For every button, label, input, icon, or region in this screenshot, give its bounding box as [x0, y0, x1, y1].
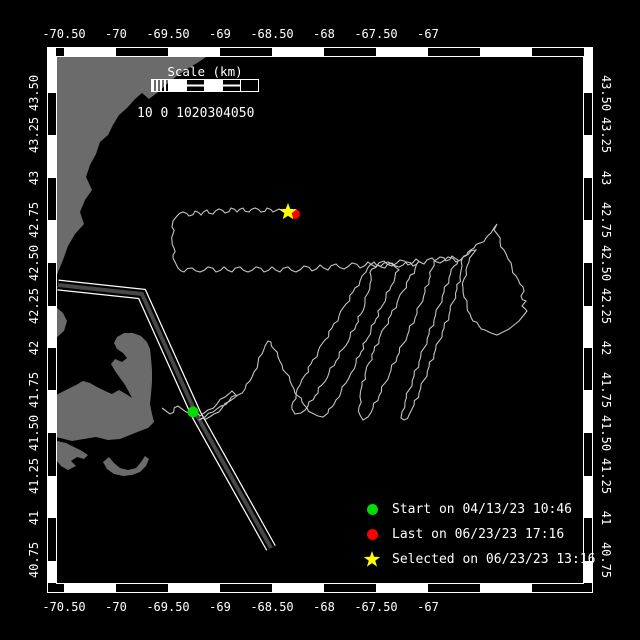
axis-label-right-4: 42.50 [599, 245, 613, 281]
axis-label-top-3: -69 [209, 27, 231, 41]
start-marker-icon [367, 504, 378, 515]
border-band-left [48, 135, 56, 178]
axis-label-left-9: 41.25 [27, 458, 41, 494]
map-geography [48, 57, 527, 548]
axis-label-left-1: 43.25 [27, 117, 41, 153]
land-north-shore-coast [48, 57, 206, 300]
border-band-left [48, 48, 56, 93]
axis-label-top-4: -68.50 [250, 27, 293, 41]
border-band-right [584, 135, 592, 178]
axis-label-bottom-6: -67.50 [354, 600, 397, 614]
border-band-left [48, 561, 56, 583]
axis-label-right-2: 43 [599, 171, 613, 185]
land-marthas-vineyard [57, 441, 88, 470]
axis-label-top-1: -70 [105, 27, 127, 41]
axis-label-bottom-2: -69.50 [146, 600, 189, 614]
selected-marker-icon [364, 551, 381, 568]
border-band-left [48, 220, 56, 263]
border-band-bottom [272, 584, 324, 592]
axis-label-top-7: -67 [417, 27, 439, 41]
border-band-top [168, 48, 220, 56]
border-band-top [64, 48, 116, 56]
last-marker-icon [367, 529, 378, 540]
axis-label-bottom-7: -67 [417, 600, 439, 614]
track-legend: Start on 04/13/23 10:46 Last on 06/23/23… [360, 497, 596, 572]
legend-item-start: Start on 04/13/23 10:46 [360, 497, 596, 522]
border-band-right [584, 306, 592, 348]
axis-label-left-7: 41.75 [27, 372, 41, 408]
axis-label-right-7: 41.75 [599, 372, 613, 408]
axis-label-bottom-1: -70 [105, 600, 127, 614]
axis-label-right-6: 42 [599, 341, 613, 355]
axis-label-left-3: 42.75 [27, 202, 41, 238]
border-band-top [376, 48, 428, 56]
border-band-bottom [168, 584, 220, 592]
border-band-left [48, 306, 56, 348]
axis-label-right-8: 41.50 [599, 415, 613, 451]
axis-label-right-9: 41.25 [599, 458, 613, 494]
legend-item-selected: Selected on 06/23/23 13:16 [360, 547, 596, 572]
axis-label-bottom-4: -68.50 [250, 600, 293, 614]
border-band-right [584, 220, 592, 263]
axis-label-left-5: 42.25 [27, 288, 41, 324]
axis-label-top-6: -67.50 [354, 27, 397, 41]
axis-label-left-11: 40.75 [27, 542, 41, 578]
border-band-top [272, 48, 324, 56]
border-band-left [48, 390, 56, 433]
axis-label-top-5: -68 [313, 27, 335, 41]
axis-label-bottom-3: -69 [209, 600, 231, 614]
axis-label-left-8: 41.50 [27, 415, 41, 451]
border-band-left [48, 476, 56, 518]
axis-label-left-4: 42.50 [27, 245, 41, 281]
axis-label-left-2: 43 [27, 171, 41, 185]
axis-label-bottom-5: -68 [313, 600, 335, 614]
axis-label-right-10: 41 [599, 511, 613, 525]
land-cape-cod [48, 333, 154, 441]
border-band-right [584, 390, 592, 433]
axis-label-right-0: 43.50 [599, 75, 613, 111]
border-band-top [480, 48, 532, 56]
map-window: -70.50-70.50-70-70-69.50-69.50-69-69-68.… [0, 0, 640, 640]
scale-bar-labels: 10 0 1020304050 [137, 106, 254, 121]
border-band-bottom [376, 584, 428, 592]
axis-label-right-1: 43.25 [599, 117, 613, 153]
legend-item-last: Last on 06/23/23 17:16 [360, 522, 596, 547]
border-band-bottom [480, 584, 532, 592]
axis-label-left-0: 43.50 [27, 75, 41, 111]
scale-bar-title: Scale (km) [167, 64, 242, 79]
axis-label-left-6: 42 [27, 341, 41, 355]
axis-label-top-2: -69.50 [146, 27, 189, 41]
vehicle-track-path[interactable] [162, 208, 527, 420]
legend-start-label: Start on 04/13/23 10:46 [392, 502, 572, 517]
border-band-bottom [64, 584, 116, 592]
axis-label-right-11: 40.75 [599, 542, 613, 578]
border-band-right [584, 48, 592, 93]
start-position-marker[interactable] [188, 407, 199, 418]
axis-label-right-3: 42.75 [599, 202, 613, 238]
axis-label-bottom-0: -70.50 [42, 600, 85, 614]
legend-last-label: Last on 06/23/23 17:16 [392, 527, 564, 542]
land-nantucket [103, 456, 149, 476]
axis-label-right-5: 42.25 [599, 288, 613, 324]
legend-selected-label: Selected on 06/23/23 13:16 [392, 552, 596, 567]
axis-label-left-10: 41 [27, 511, 41, 525]
axis-label-top-0: -70.50 [42, 27, 85, 41]
